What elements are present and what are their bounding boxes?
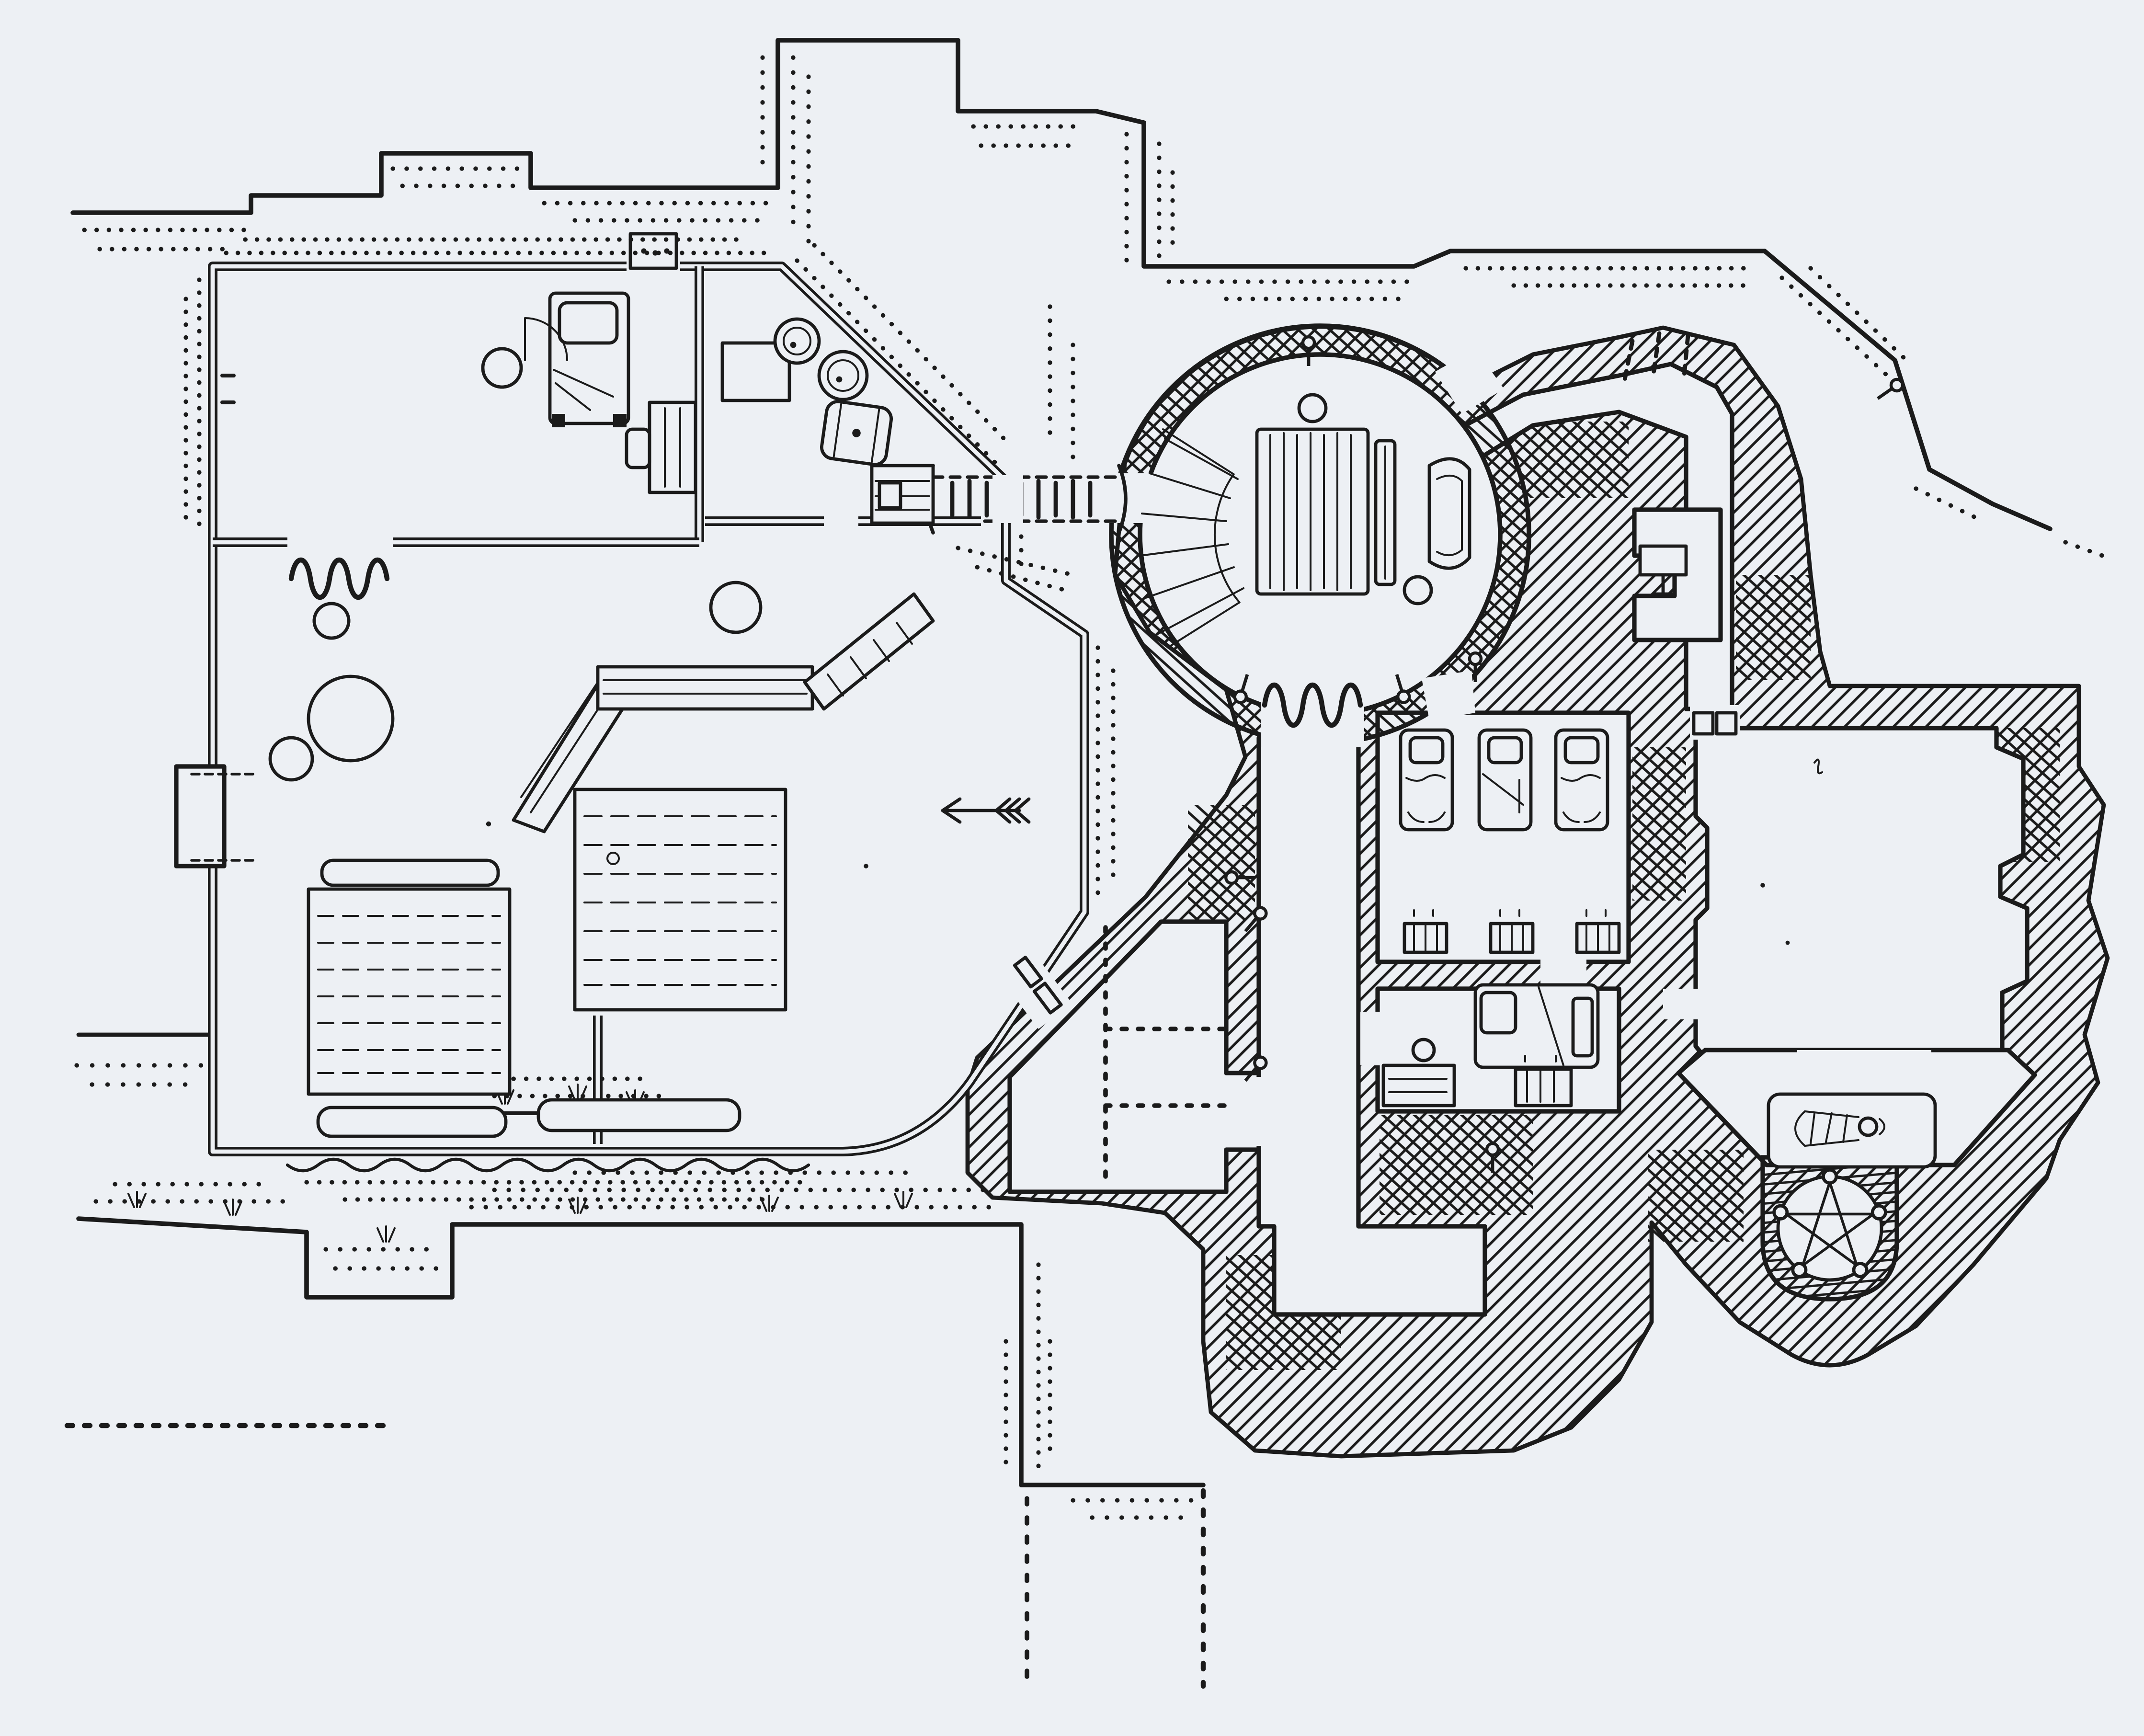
candle — [1872, 1206, 1885, 1219]
bridge-crate — [872, 466, 933, 523]
candle — [1793, 1264, 1806, 1277]
pebble — [711, 582, 761, 632]
long-table — [308, 860, 510, 1094]
chair — [627, 429, 650, 468]
round-stool — [1413, 1039, 1434, 1061]
bed — [1475, 985, 1598, 1067]
storeroom-furniture — [722, 319, 933, 523]
dungeon-map-page — [0, 0, 2144, 1736]
dungeon-map — [0, 0, 2144, 1736]
candle — [1774, 1206, 1787, 1219]
great-cave-hall-floor — [1696, 728, 2027, 1077]
bench — [538, 1100, 740, 1131]
cave-complex — [968, 326, 2108, 1456]
high-back-chair — [1429, 459, 1470, 568]
altar — [1768, 1094, 1935, 1167]
boulder — [308, 676, 393, 761]
wall-alcove-doors — [176, 766, 253, 866]
round-stool — [1299, 395, 1326, 422]
bench — [318, 1108, 506, 1136]
great-hall-furniture — [270, 560, 1029, 1171]
round-stool — [1404, 577, 1431, 604]
bed — [1479, 730, 1531, 830]
desk — [1383, 1065, 1454, 1106]
candle — [1823, 1170, 1836, 1183]
boulder — [270, 738, 312, 780]
round-barrel — [775, 319, 819, 363]
door-curtain-icon — [291, 560, 387, 597]
grass-edge — [287, 1159, 809, 1171]
torch-sconce-icon — [1874, 377, 1905, 403]
bench — [322, 860, 498, 885]
long-plank-table — [1257, 429, 1395, 594]
round-barrel — [819, 352, 867, 400]
bed — [1556, 730, 1608, 830]
bed — [1401, 730, 1452, 830]
candle — [1854, 1264, 1867, 1277]
lying-barrel — [820, 400, 892, 466]
bedroom-furniture — [222, 293, 696, 492]
bed — [550, 293, 628, 427]
arrow-marker — [943, 799, 1029, 822]
long-table — [575, 789, 786, 1010]
wall-pegs — [222, 376, 234, 402]
writing-table — [627, 402, 696, 492]
stone-house — [176, 234, 1113, 1199]
